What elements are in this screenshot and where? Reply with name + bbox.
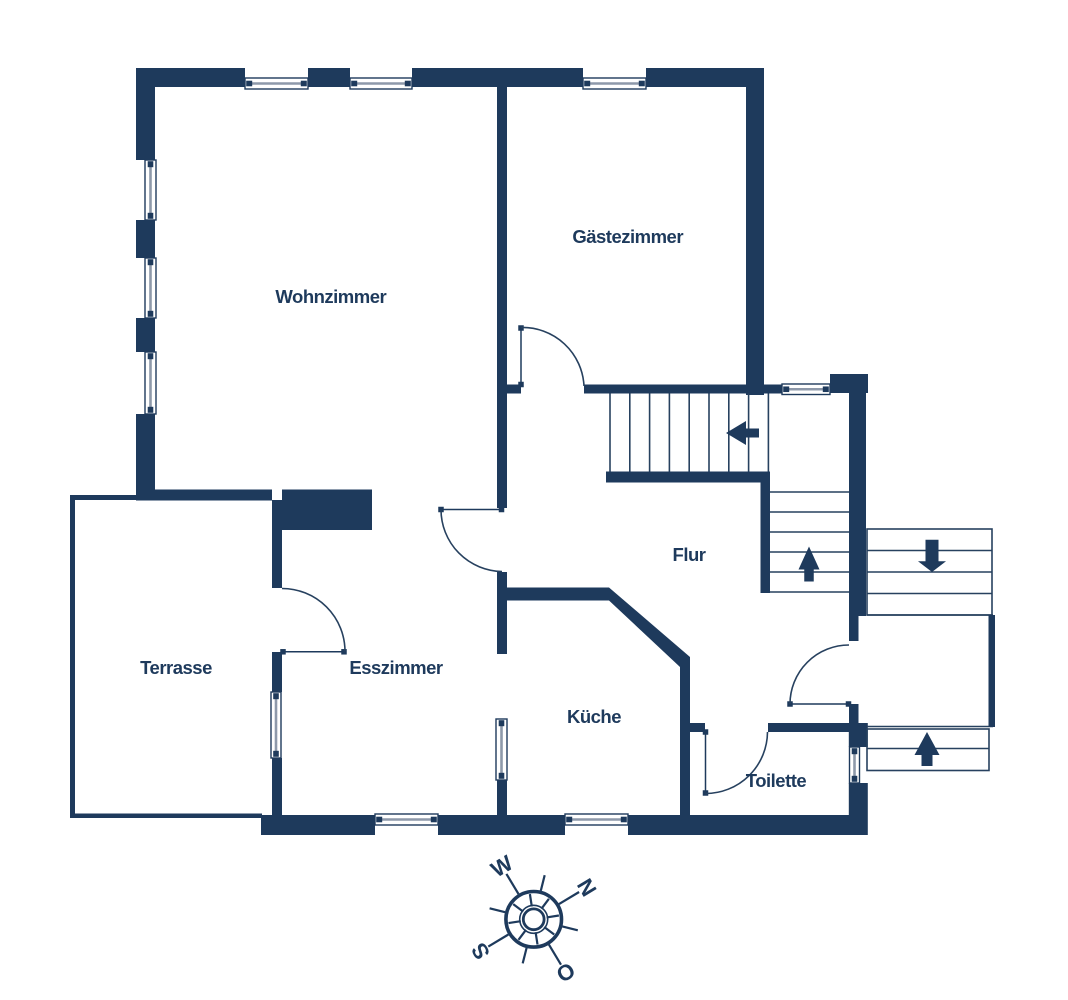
svg-text:Küche: Küche (567, 706, 621, 727)
svg-text:Flur: Flur (673, 544, 706, 565)
svg-text:Esszimmer: Esszimmer (349, 657, 442, 678)
svg-text:Toilette: Toilette (746, 770, 807, 791)
svg-text:Gästezimmer: Gästezimmer (572, 226, 683, 247)
svg-text:Wohnzimmer: Wohnzimmer (275, 286, 386, 307)
svg-text:Terrasse: Terrasse (140, 657, 212, 678)
